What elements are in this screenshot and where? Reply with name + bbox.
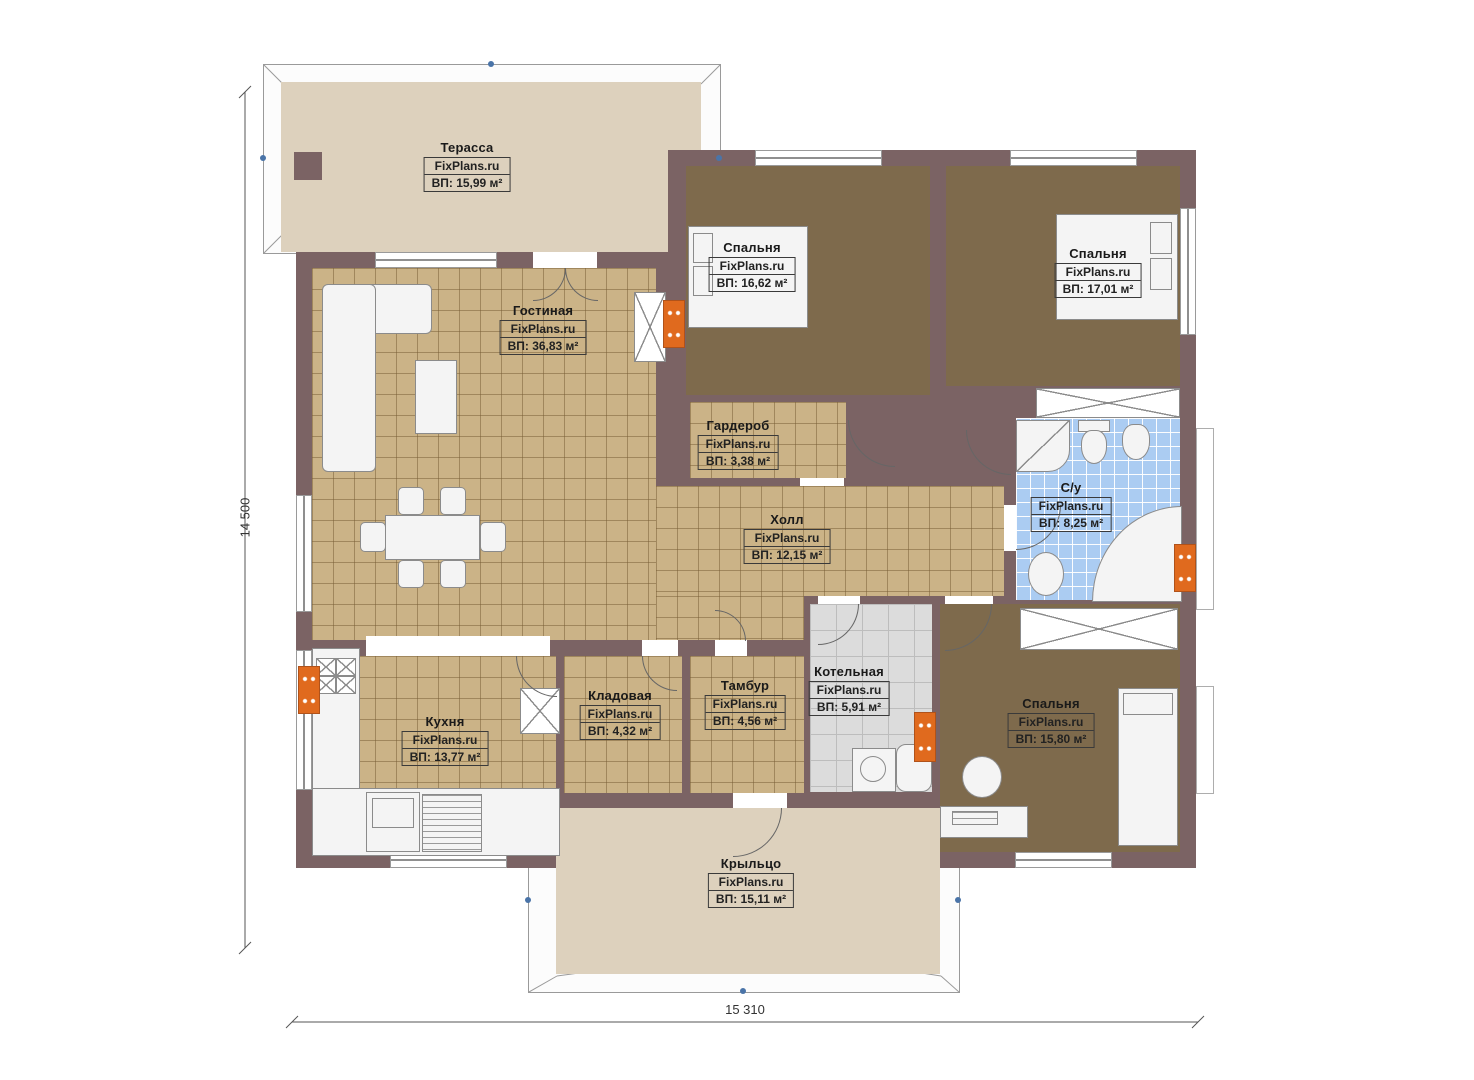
room-label-terrace: Терасса FixPlans.ru ВП: 15,99 м²: [424, 140, 511, 192]
coffee-table: [415, 360, 457, 434]
roof-anchor-dot: [260, 155, 266, 161]
radiator: [663, 300, 685, 348]
room-area: ВП: 15,11 м²: [709, 891, 793, 907]
room-area: ВП: 16,62 м²: [710, 275, 795, 291]
watermark: FixPlans.ru: [745, 530, 830, 547]
kitchen-sink-basin: [372, 798, 414, 828]
roof-anchor-dot: [740, 988, 746, 994]
watermark: FixPlans.ru: [425, 158, 510, 175]
bathroom-sink: [1028, 552, 1064, 596]
watermark: FixPlans.ru: [581, 706, 660, 723]
window-bedroom3-south: [1015, 852, 1112, 868]
roof-anchor-dot: [488, 61, 494, 67]
shower-cabin: [1016, 420, 1070, 472]
desk-keyboard: [952, 811, 998, 825]
watermark: FixPlans.ru: [1009, 714, 1094, 731]
room-name: Котельная: [809, 664, 890, 679]
radiator: [298, 666, 320, 714]
watermark: FixPlans.ru: [699, 436, 778, 453]
door-opening-wardrobe: [800, 478, 844, 486]
room-name: Тамбур: [705, 678, 786, 693]
sofa-side-section: [322, 284, 376, 472]
closet-bedroom3: [1020, 608, 1178, 650]
floor-plan-canvas: 14 500 15 310 Терасса FixPlans.ru ВП: 15…: [0, 0, 1474, 1080]
room-area: ВП: 13,77 м²: [403, 749, 488, 765]
dimension-width-label: 15 310: [695, 1002, 795, 1017]
room-label-porch: Крыльцо FixPlans.ru ВП: 15,11 м²: [708, 856, 794, 908]
watermark: FixPlans.ru: [810, 682, 889, 699]
door-opening-bedroom3: [945, 596, 993, 604]
watermark: FixPlans.ru: [403, 732, 488, 749]
room-name: Крыльцо: [708, 856, 794, 871]
room-label-storage: Кладовая FixPlans.ru ВП: 4,32 м²: [580, 688, 661, 740]
room-label-kitchen: Кухня FixPlans.ru ВП: 13,77 м²: [402, 714, 489, 766]
room-area: ВП: 8,25 м²: [1032, 515, 1111, 531]
room-area: ВП: 15,80 м²: [1009, 731, 1094, 747]
watermark: FixPlans.ru: [710, 258, 795, 275]
window-living-north: [375, 252, 497, 268]
room-label-hall: Холл FixPlans.ru ВП: 12,15 м²: [744, 512, 831, 564]
fireplace-flue: [634, 292, 666, 362]
roof-anchor-dot: [525, 897, 531, 903]
room-area: ВП: 17,01 м²: [1056, 281, 1141, 297]
room-area: ВП: 12,15 м²: [745, 547, 830, 563]
window-sill-bedroom3-east: [1196, 686, 1214, 794]
window-bedroom2-north: [1010, 150, 1137, 166]
pillow: [1150, 258, 1172, 290]
window-living-west: [296, 495, 312, 612]
stove-burner: [336, 658, 356, 676]
dish-drainer: [422, 794, 482, 852]
opening-living-kitchen: [366, 636, 550, 656]
chair: [398, 487, 424, 515]
room-label-living: Гостиная FixPlans.ru ВП: 36,83 м²: [500, 303, 587, 355]
room-name: Спальня: [1008, 696, 1095, 711]
room-label-bedroom1: Спальня FixPlans.ru ВП: 16,62 м²: [709, 240, 796, 292]
watermark: FixPlans.ru: [1032, 498, 1111, 515]
room-label-boiler: Котельная FixPlans.ru ВП: 5,91 м²: [809, 664, 890, 716]
room-area: ВП: 15,99 м²: [425, 175, 510, 191]
room-name: Спальня: [709, 240, 796, 255]
roof-anchor-dot: [716, 155, 722, 161]
door-opening-boiler: [818, 596, 860, 604]
pillow: [1150, 222, 1172, 254]
terrace-pillar: [294, 152, 322, 180]
bidet: [1122, 424, 1150, 460]
radiator: [1174, 544, 1196, 592]
room-area: ВП: 3,38 м²: [699, 453, 778, 469]
room-label-wardrobe: Гардероб FixPlans.ru ВП: 3,38 м²: [698, 418, 779, 470]
watermark: FixPlans.ru: [1056, 264, 1141, 281]
door-opening-vestibule: [715, 640, 747, 656]
watermark: FixPlans.ru: [709, 874, 793, 891]
chair: [440, 487, 466, 515]
room-name: Гостиная: [500, 303, 587, 318]
room-area: ВП: 4,56 м²: [706, 713, 785, 729]
room-label-bedroom2: Спальня FixPlans.ru ВП: 17,01 м²: [1055, 246, 1142, 298]
window-bedroom2-east: [1180, 208, 1196, 335]
toilet: [1081, 430, 1107, 464]
washing-machine-door: [860, 756, 886, 782]
room-name: Спальня: [1055, 246, 1142, 261]
dimension-height-label: 14 500: [238, 478, 253, 558]
closet-bedroom2: [1036, 388, 1180, 418]
room-label-vestibule: Тамбур FixPlans.ru ВП: 4,56 м²: [705, 678, 786, 730]
entrance-door-opening: [733, 793, 787, 808]
room-name: Терасса: [424, 140, 511, 155]
room-name: Кладовая: [580, 688, 661, 703]
chair: [480, 522, 506, 552]
door-opening-storage: [642, 640, 678, 656]
pillow: [1123, 693, 1173, 715]
room-label-bathroom: С/у FixPlans.ru ВП: 8,25 м²: [1031, 480, 1112, 532]
room-area: ВП: 36,83 м²: [501, 338, 586, 354]
room-name: С/у: [1031, 480, 1112, 495]
stove-burner: [336, 676, 356, 694]
room-area: ВП: 4,32 м²: [581, 723, 660, 739]
chair: [440, 560, 466, 588]
roof-anchor-dot: [955, 897, 961, 903]
chair: [398, 560, 424, 588]
chair: [360, 522, 386, 552]
radiator: [914, 712, 936, 762]
room-area: ВП: 5,91 м²: [810, 699, 889, 715]
room-name: Холл: [744, 512, 831, 527]
door-opening-terrace: [533, 252, 597, 268]
window-bedroom1-north: [755, 150, 882, 166]
watermark: FixPlans.ru: [706, 696, 785, 713]
room-name: Гардероб: [698, 418, 779, 433]
room-name: Кухня: [402, 714, 489, 729]
watermark: FixPlans.ru: [501, 321, 586, 338]
window-sill-bathroom-east: [1196, 428, 1214, 610]
room-label-bedroom3: Спальня FixPlans.ru ВП: 15,80 м²: [1008, 696, 1095, 748]
stool: [962, 756, 1002, 798]
door-opening-bathroom: [1004, 505, 1016, 551]
dining-table: [385, 515, 480, 560]
